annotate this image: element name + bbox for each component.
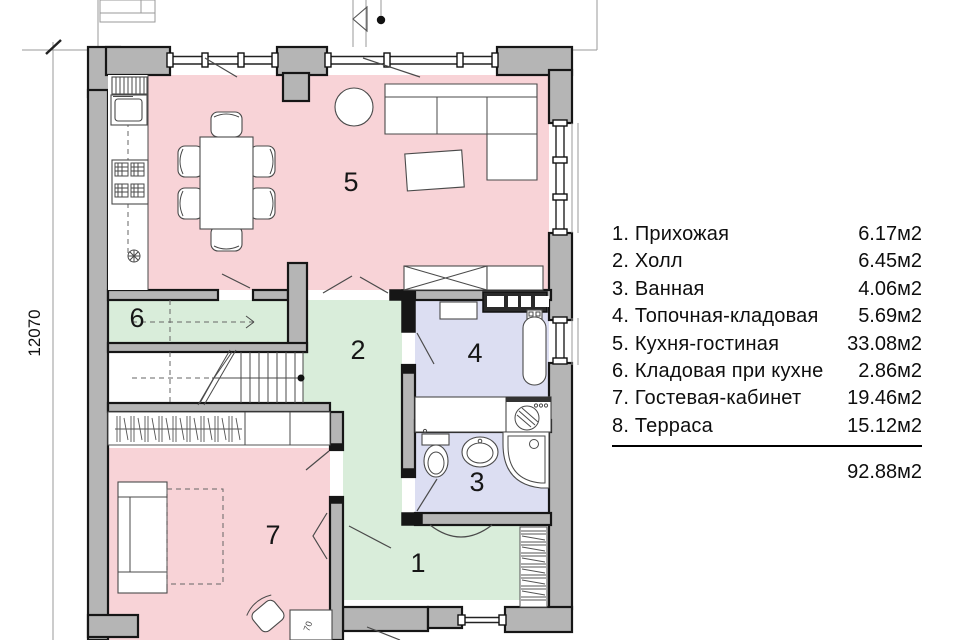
wall-5-6-a [108,290,218,300]
wall-cap-a [402,365,415,373]
room-label-4: 4 [467,338,482,368]
room-areas [108,75,549,640]
floor-drain-icon [128,250,140,262]
wall-3-1 [415,513,551,525]
legend-room-name: 6. Кладовая при кухне [612,358,823,385]
legend-row: 5. Кухня-гостиная 33.08м2 [612,331,922,358]
water-heater [523,317,546,385]
stair-direction-dot [298,375,305,382]
wall-2-4-pier [402,290,415,332]
wall-top-a [106,47,170,75]
wall-cap-d [330,497,343,503]
room-label-2: 2 [350,335,365,365]
wall-5-2-jamb [390,290,403,300]
room-legend: 1. Прихожая 6.17м2 2. Холл 6.45м2 3. Ван… [612,221,922,484]
bath-sink [462,437,498,467]
wall-right-lower [549,363,572,609]
wall-left-bottom-step [88,615,138,637]
legend-room-name: 1. Прихожая [612,221,729,248]
legend-room-name: 2. Холл [612,248,683,275]
legend-room-name: 5. Кухня-гостиная [612,331,779,358]
legend-row: 7. Гостевая-кабинет 19.46м2 [612,385,922,412]
wall-top-b [277,47,327,75]
wall-bottom-right-block [505,607,572,632]
room-label-1: 1 [410,548,425,578]
legend-room-name: 4. Топочная-кладовая [612,303,819,330]
legend-room-area: 6.45м2 [858,248,922,275]
sofa-bed [118,482,167,593]
entry-wardrobe [520,527,547,607]
legend-row: 2. Холл 6.45м2 [612,248,922,275]
sink-drainer [112,77,147,94]
chimney-outline [100,0,155,22]
wall-stairs-wardrobe [108,403,330,412]
legend-room-area: 2.86м2 [858,358,922,385]
legend-room-area: 5.69м2 [858,303,922,330]
room-label-3: 3 [469,467,484,497]
downpipe-node [377,16,385,24]
wall-2-34 [402,365,415,477]
kitchen-sink-bowl [115,99,142,121]
floor-plan-svg: 70 5 6 2 4 3 7 1 12070 [0,0,600,640]
floor-plan-page: 70 5 6 2 4 3 7 1 12070 1. Прихожая 6.17м… [0,0,960,640]
kitchen [108,75,148,290]
wall-cabinet [440,302,477,319]
wall-5-6-b [253,290,288,300]
wall-chimney-pier [283,73,309,101]
legend-room-area: 4.06м2 [858,276,922,303]
dimension-text: 12070 [25,309,44,356]
legend-room-area: 33.08м2 [847,331,922,358]
wall-6-stairs [108,343,307,352]
wall-bottom-pier [428,607,462,628]
dining-table [200,137,253,229]
legend-room-name: 8. Терраса [612,413,713,440]
toilet [422,429,449,477]
wall-pier-kitchen [288,263,307,352]
room-label-7: 7 [265,520,280,550]
legend-room-area: 15.12м2 [847,413,922,440]
room-label-5: 5 [343,167,358,197]
wall-3-1-pier [402,513,422,525]
hall-wardrobe [108,412,330,445]
room-2-hall-area3 [343,412,402,525]
legend-room-area: 6.17м2 [858,221,922,248]
coffee-table [405,150,464,191]
legend-row: 6. Кладовая при кухне 2.86м2 [612,358,922,385]
cabinet-plain [487,266,543,290]
side-table-round [335,88,373,126]
wall-right-upper [549,70,572,123]
legend-room-name: 7. Гостевая-кабинет [612,385,801,412]
wall-cap-c [330,444,343,450]
washing-machine [506,397,551,432]
legend-room-area: 19.46м2 [847,385,922,412]
legend-row: 8. Терраса 15.12м2 [612,413,922,440]
legend-room-name: 3. Ванная [612,276,705,303]
wall-left [88,90,108,640]
downpipe-arrow-icon [353,7,367,31]
wall-bottom-a [343,607,428,631]
wall-cap-b [402,469,415,477]
legend-row: 4. Топочная-кладовая 5.69м2 [612,303,922,330]
wall-right-mid [549,233,572,320]
legend-row: 1. Прихожая 6.17м2 [612,221,922,248]
legend-total-area: 92.88м2 [612,447,922,484]
legend-row: 3. Ванная 4.06м2 [612,276,922,303]
room-label-6: 6 [129,303,144,333]
